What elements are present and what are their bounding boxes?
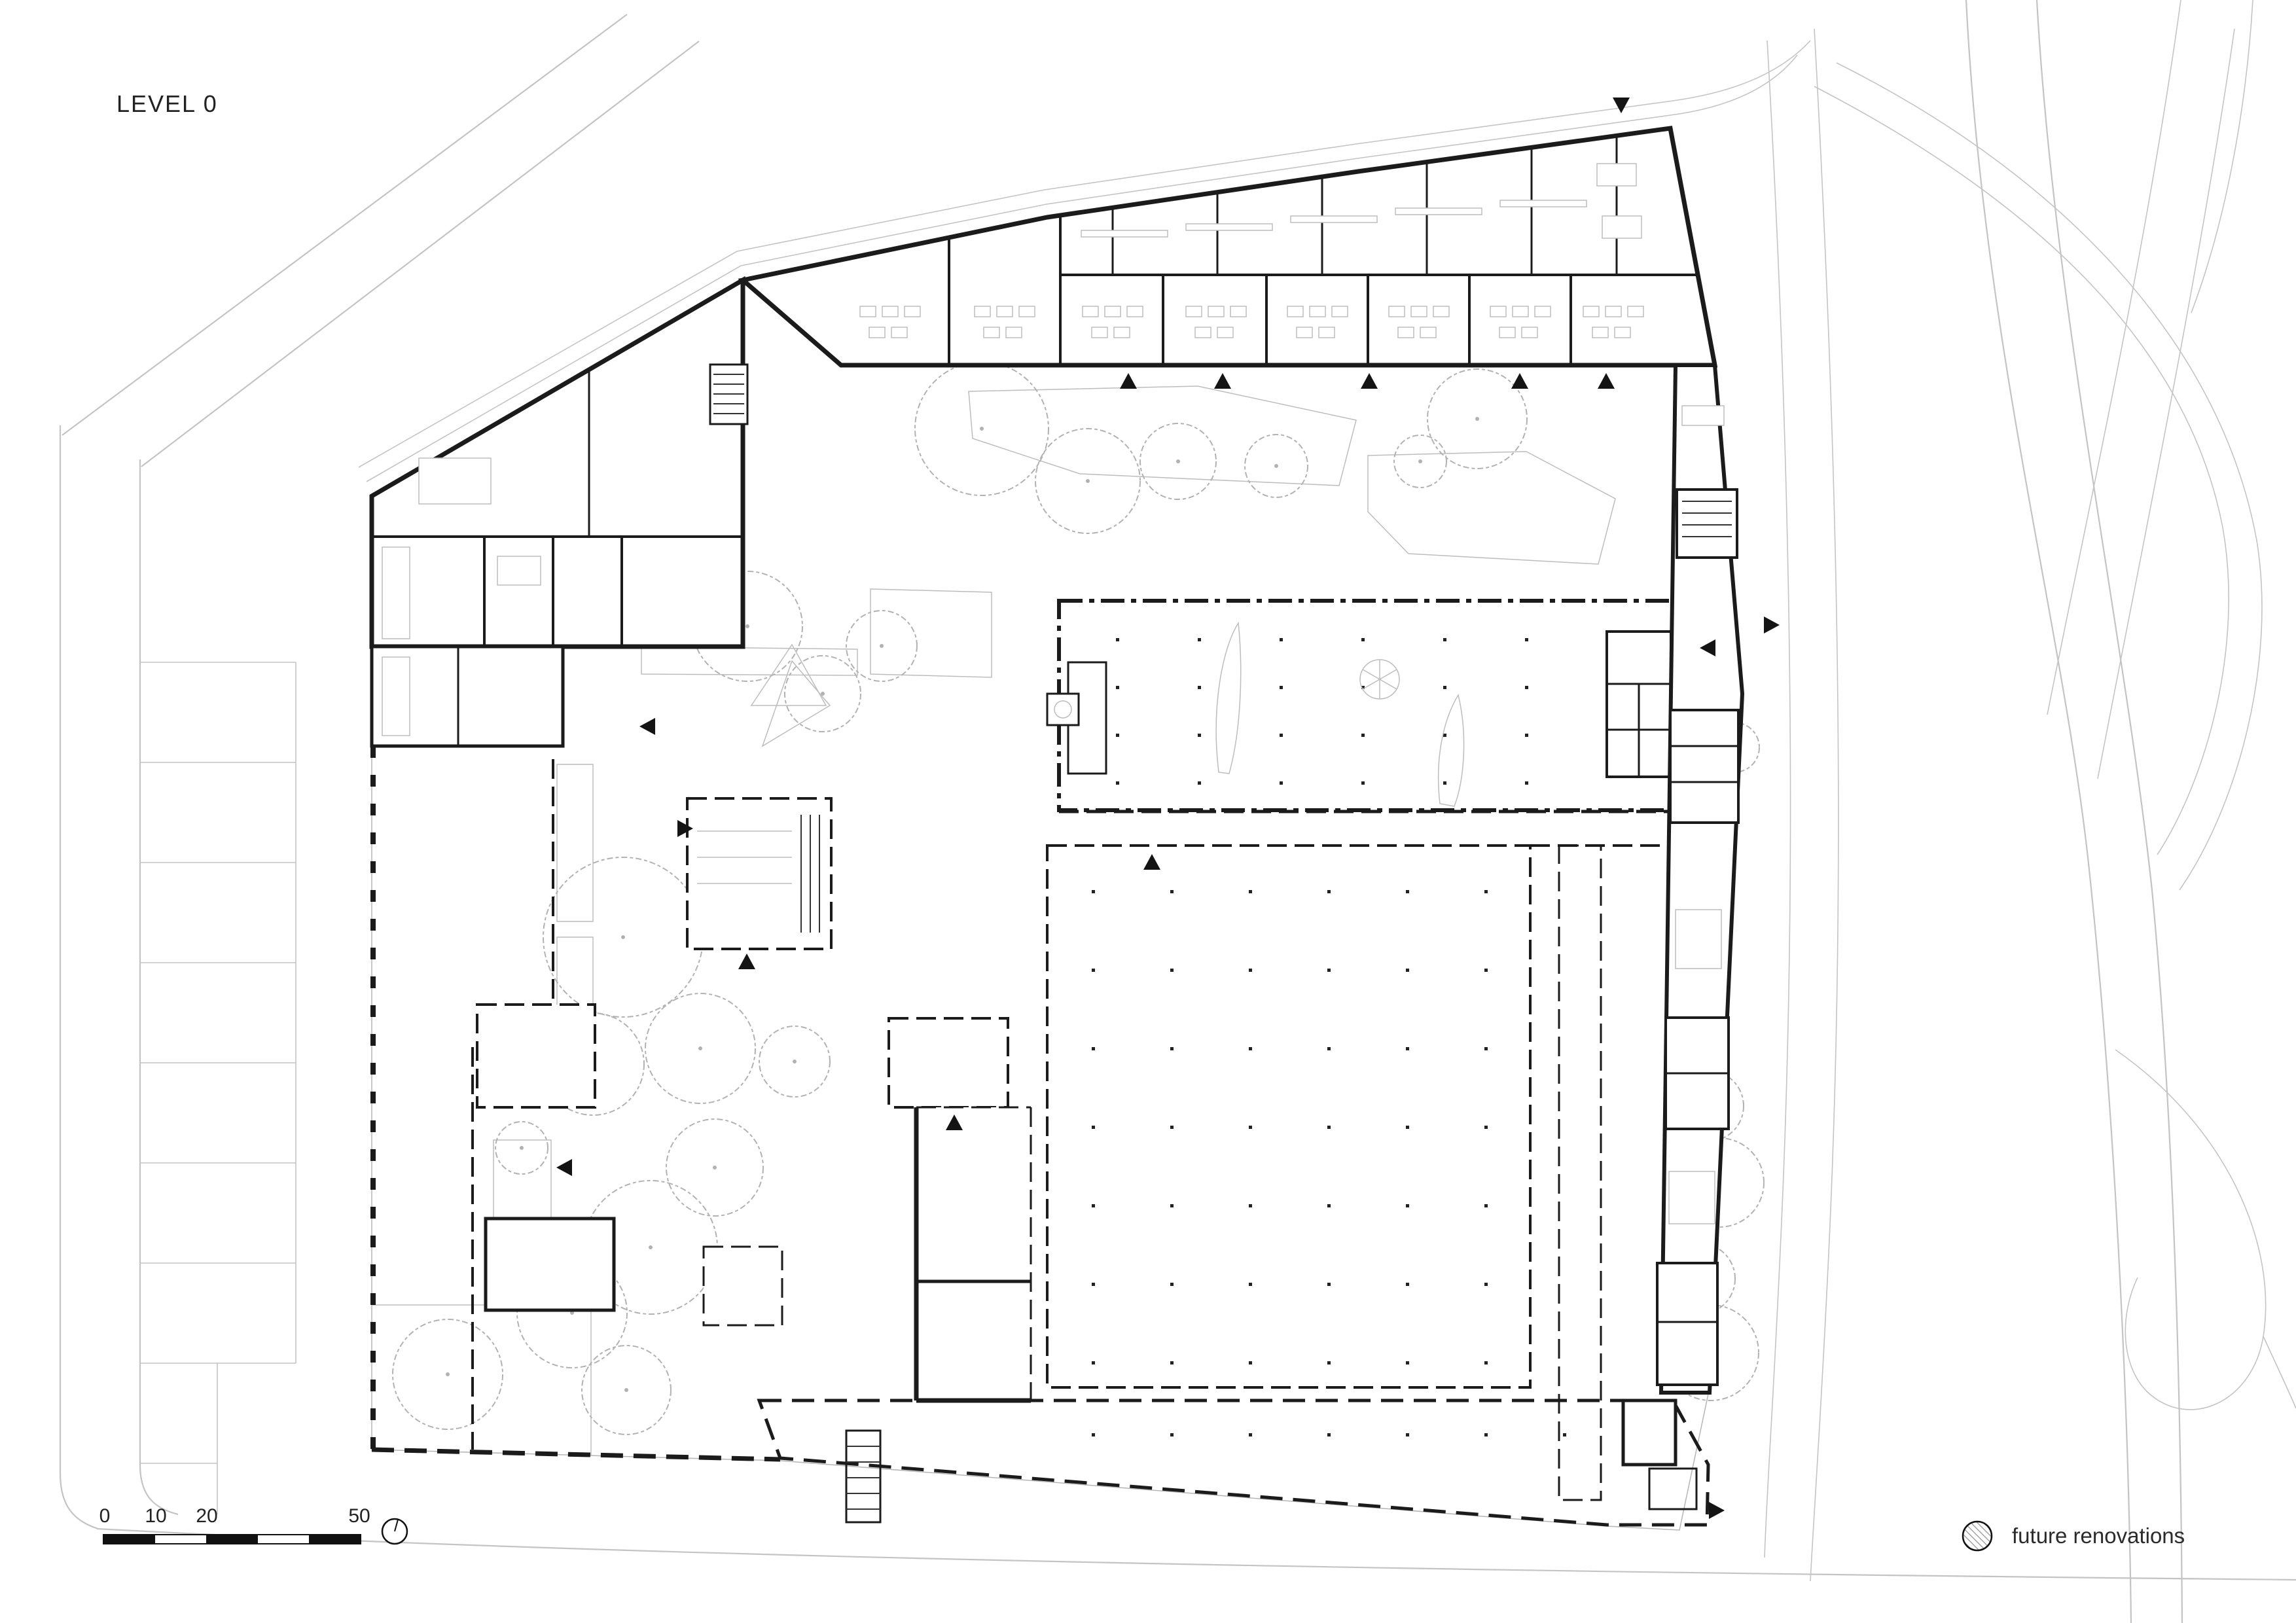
scale-segment — [206, 1535, 257, 1543]
floor-plan-drawing — [0, 0, 2296, 1623]
pavilion — [477, 1005, 595, 1107]
scale-label-0: 0 — [99, 1505, 111, 1527]
planting-bed — [969, 386, 1356, 486]
canopy-structure — [751, 645, 830, 746]
scale-segment — [155, 1535, 206, 1543]
planting-bed — [557, 764, 593, 921]
floor-plan-page: LEVEL 0 0 10 20 50 future renovations — [0, 0, 2296, 1623]
wing-stair — [1677, 490, 1737, 558]
entrance-marker — [1613, 98, 1630, 113]
scale-label-20: 20 — [196, 1505, 217, 1527]
tree — [1245, 435, 1308, 497]
west-building-block — [372, 280, 747, 746]
scale-label-50: 50 — [348, 1505, 370, 1527]
future-renovation-lower-band — [759, 1400, 1708, 1525]
tree — [666, 1119, 763, 1216]
entrance-marker — [1511, 373, 1528, 389]
tree — [1394, 435, 1446, 488]
planting-bed — [1710, 208, 1744, 359]
tree — [1427, 369, 1527, 469]
legend-swatch-hatched-circle — [1963, 1522, 1992, 1550]
east-wing — [1623, 365, 1742, 1465]
se-corner-room — [1623, 1400, 1676, 1465]
entrance-marker — [1709, 1502, 1725, 1519]
tree — [759, 1026, 830, 1097]
entrance-marker — [1361, 373, 1378, 389]
scale-segment — [309, 1535, 360, 1543]
entrance-marker — [639, 718, 655, 735]
hall-corridor — [1059, 811, 1676, 846]
tree — [645, 993, 755, 1103]
entrance-marker — [1214, 373, 1231, 389]
field-strips — [140, 662, 296, 1514]
entrance-marker — [738, 954, 755, 969]
tree — [1140, 423, 1216, 499]
page-title: LEVEL 0 — [117, 90, 218, 118]
entrance-marker — [1764, 616, 1780, 633]
renovation-column-grid — [1092, 890, 1566, 1436]
tree — [582, 1346, 671, 1435]
planting-bed — [1368, 452, 1615, 564]
tree — [915, 362, 1049, 495]
pavilion — [889, 1018, 1008, 1107]
pavilion — [704, 1247, 782, 1325]
planting-bed — [870, 589, 992, 677]
tree — [393, 1319, 503, 1429]
north-indicator — [382, 1519, 407, 1544]
scale-segment — [258, 1535, 309, 1543]
scale-label-10: 10 — [145, 1505, 166, 1527]
north-building-strip — [743, 128, 1715, 365]
court-room-block — [916, 1107, 1031, 1400]
wing-core — [1670, 710, 1738, 823]
entrance-marker — [1143, 854, 1160, 870]
tree — [846, 611, 917, 681]
entrance-marker — [1120, 373, 1137, 389]
tree — [1035, 429, 1140, 533]
legend-label: future renovations — [2012, 1524, 2185, 1548]
utility-box — [1047, 694, 1079, 725]
pavilion — [486, 1219, 614, 1310]
wing-rooms — [1657, 1263, 1717, 1385]
entrance-marker — [556, 1159, 572, 1176]
ramp — [846, 1431, 880, 1522]
courtyard-pavilions — [477, 645, 1079, 1522]
future-renovation-area — [759, 846, 1708, 1525]
tree — [495, 1122, 548, 1174]
scale-bar — [103, 1534, 361, 1544]
entrance-marker — [1598, 373, 1615, 389]
tree — [785, 656, 861, 732]
planting-bed — [641, 647, 857, 675]
scale-segment — [104, 1535, 155, 1543]
exhibition-hall — [1059, 601, 1676, 846]
future-renovation-corner — [1649, 1469, 1696, 1509]
